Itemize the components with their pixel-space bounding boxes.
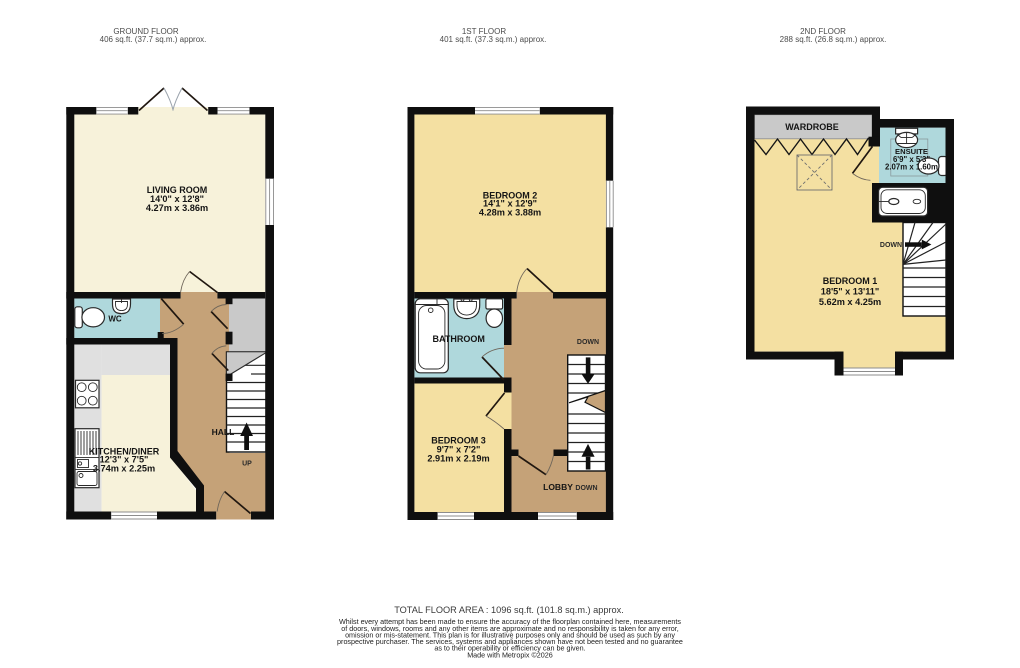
- svg-text:BEDROOM 1: BEDROOM 1: [823, 276, 878, 286]
- svg-text:4.28m x 3.88m: 4.28m x 3.88m: [479, 208, 541, 218]
- svg-text:DOWN: DOWN: [575, 485, 597, 492]
- svg-text:HALL: HALL: [212, 427, 235, 437]
- svg-text:18'5" x 13'11": 18'5" x 13'11": [821, 287, 880, 297]
- svg-text:Made with Metropix ©2026: Made with Metropix ©2026: [467, 650, 553, 659]
- svg-text:UP: UP: [242, 461, 252, 468]
- svg-text:5.62m x 4.25m: 5.62m x 4.25m: [819, 297, 881, 307]
- svg-text:401 sq.ft. (37.3 sq.m.) approx: 401 sq.ft. (37.3 sq.m.) approx.: [440, 35, 547, 44]
- svg-text:TOTAL FLOOR AREA : 1096 sq.ft.: TOTAL FLOOR AREA : 1096 sq.ft. (101.8 sq…: [394, 605, 624, 615]
- svg-text:DOWN: DOWN: [880, 242, 902, 249]
- svg-text:2.91m x 2.19m: 2.91m x 2.19m: [427, 453, 489, 463]
- svg-text:288 sq.ft. (26.8 sq.m.) approx: 288 sq.ft. (26.8 sq.m.) approx.: [780, 35, 887, 44]
- svg-text:4.27m x 3.86m: 4.27m x 3.86m: [146, 203, 208, 213]
- svg-text:406 sq.ft. (37.7 sq.m.) approx: 406 sq.ft. (37.7 sq.m.) approx.: [100, 35, 207, 44]
- svg-text:WC: WC: [108, 315, 122, 324]
- svg-text:LOBBY: LOBBY: [543, 482, 573, 492]
- svg-text:WARDROBE: WARDROBE: [785, 122, 839, 132]
- svg-text:DOWN: DOWN: [577, 339, 599, 346]
- svg-text:3.74m x 2.25m: 3.74m x 2.25m: [93, 464, 155, 474]
- svg-text:2.07m x 1.60m: 2.07m x 1.60m: [885, 162, 938, 171]
- svg-text:BATHROOM: BATHROOM: [433, 334, 485, 344]
